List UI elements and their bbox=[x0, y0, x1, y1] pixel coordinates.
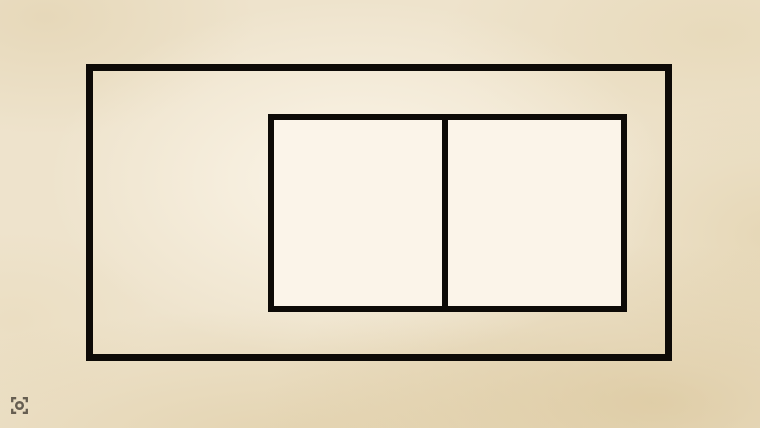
parchment-canvas bbox=[0, 0, 760, 428]
bracket-top-right-icon bbox=[23, 398, 27, 402]
screen-capture-focus-icon[interactable] bbox=[10, 396, 29, 415]
bracket-top-left-icon bbox=[12, 398, 16, 402]
divider-line bbox=[442, 116, 448, 310]
focus-ring-icon bbox=[16, 402, 23, 409]
bracket-bottom-left-icon bbox=[12, 409, 16, 413]
bracket-bottom-right-icon bbox=[23, 409, 27, 413]
